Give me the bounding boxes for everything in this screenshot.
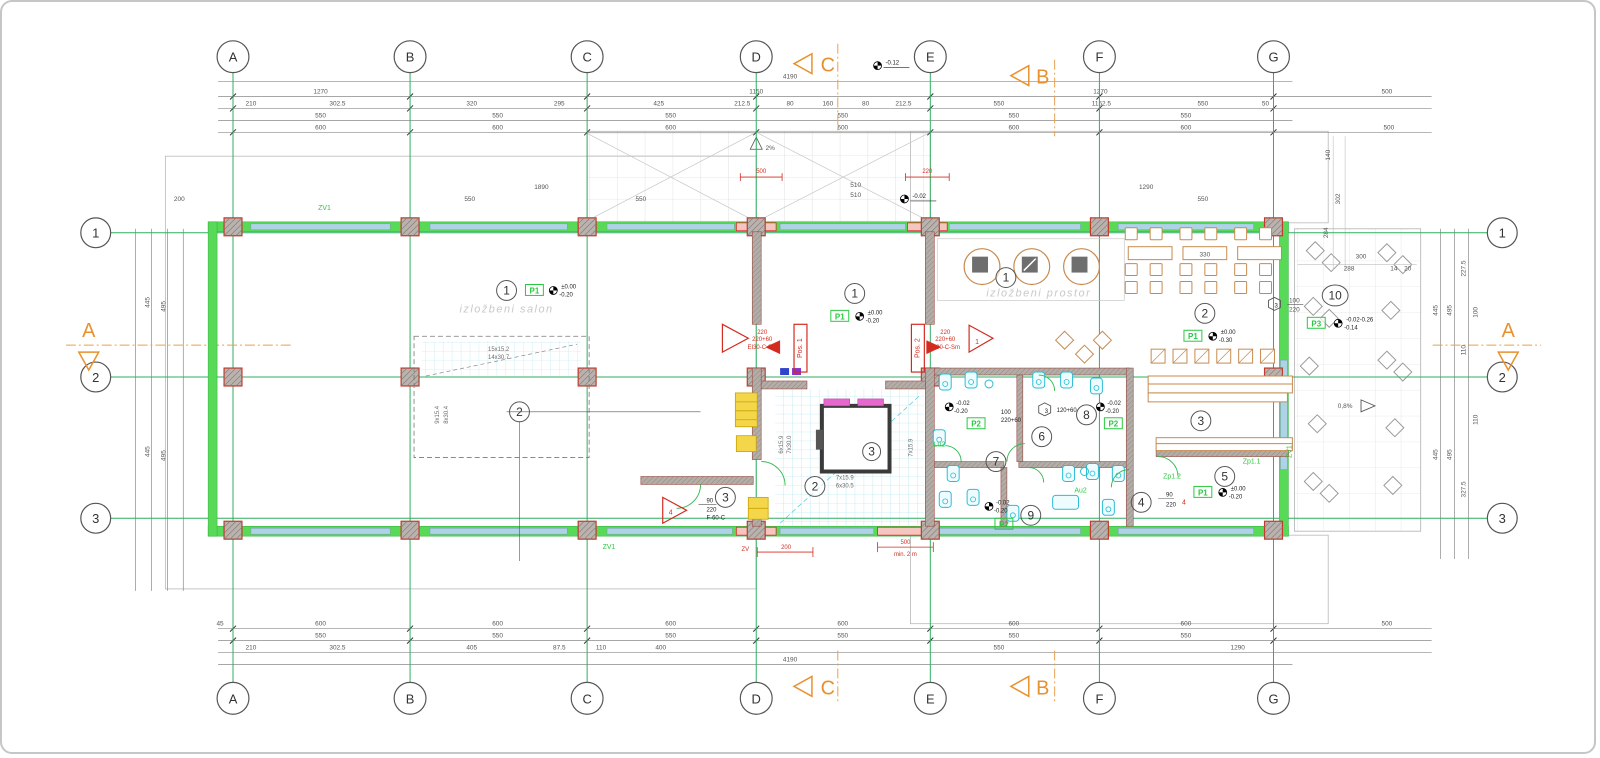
floor-tag: P1	[1188, 332, 1198, 341]
axis-bubble-D: D	[740, 682, 772, 714]
bar-counter	[1148, 376, 1292, 451]
dim: 160	[822, 100, 833, 107]
fire-door-tag: Pos. 2	[914, 338, 921, 358]
elevator-door-panel	[824, 399, 850, 406]
floor-tag: P2	[1108, 420, 1118, 429]
dimension-chain-left: 200 445 495 445 495	[136, 196, 186, 591]
column	[1265, 521, 1283, 539]
stair-count: 7x30.0	[787, 435, 793, 454]
door-type-triangle	[722, 324, 748, 352]
wall-sanitary-v2	[1126, 368, 1133, 526]
wc-fixture	[939, 374, 951, 390]
axis-letter: G	[1268, 50, 1278, 65]
table	[1238, 247, 1282, 260]
section-triangle-icon	[794, 54, 812, 74]
dim: 495	[160, 301, 167, 312]
dim: 550	[1008, 633, 1019, 640]
dim: 600	[315, 621, 326, 628]
slope-label: 0,8%	[1338, 403, 1353, 410]
display-diamond	[1093, 331, 1111, 349]
round-table	[1064, 249, 1100, 285]
main-staircase: 3 7x15.9 6x30.5 6x15.9 7x30.0 7x15.9	[775, 389, 924, 527]
axis-bubble-F: F	[1083, 682, 1115, 714]
floor-plan-canvas: 2% 4190 1270 1150 1270 500 210 302.5 320…	[0, 0, 1596, 754]
section-letter: B	[1036, 677, 1049, 699]
door-type-triangle	[969, 325, 993, 352]
dim: 495	[160, 450, 167, 461]
room-number: 2	[812, 479, 819, 493]
axis-bubble-1: 1	[81, 218, 111, 248]
room-label-hall: 1 P1 ±0.00 -0.20	[831, 284, 883, 325]
dim: 550	[492, 112, 503, 119]
chair	[1260, 282, 1272, 294]
dim: 510	[850, 192, 861, 199]
axis-number: 1	[92, 226, 99, 241]
section-triangle-icon	[1011, 66, 1029, 86]
dim: 220	[1166, 502, 1177, 508]
dim: 1270	[313, 89, 328, 96]
dim: 495	[1447, 305, 1454, 316]
dim: 550	[1181, 112, 1192, 119]
glazing	[780, 528, 874, 534]
dim: 20	[1404, 266, 1412, 273]
stair-count: 14x30.7	[488, 355, 510, 361]
display-diamond	[1076, 345, 1094, 363]
wc-fixture	[1033, 372, 1045, 388]
axis-number: 2	[92, 370, 99, 385]
wc-fixture	[947, 466, 959, 482]
zone-label: Zp1.2	[1163, 473, 1181, 480]
floor-tag: P3	[1311, 319, 1321, 328]
room-label-bar: 3	[1191, 411, 1211, 431]
dim: 220	[757, 330, 768, 336]
axis-letter: G	[1268, 691, 1278, 706]
dining-set-row-1: 330	[1125, 228, 1281, 276]
axis-bubble-B: B	[394, 41, 426, 73]
top-right-canopy-outline	[910, 131, 1328, 223]
door-rating: EI30-C-Sm	[747, 345, 776, 351]
column	[401, 521, 419, 539]
floor-plan-drawing: 2% 4190 1270 1150 1270 500 210 302.5 320…	[2, 2, 1596, 754]
chair	[1125, 264, 1137, 276]
floor-tag: P2	[999, 520, 1009, 529]
sanitary-fixtures	[933, 372, 1124, 521]
elevation-marker-icon	[1219, 488, 1227, 496]
room-number: 1	[1003, 271, 1010, 285]
column	[401, 368, 419, 386]
section-letter: A	[1502, 320, 1516, 342]
room-number: 2	[1202, 306, 1209, 320]
dim: 302	[1335, 193, 1342, 204]
chair	[1205, 228, 1217, 240]
axis-letter: D	[752, 50, 761, 65]
dim: 288	[1344, 266, 1355, 273]
glazing	[251, 224, 390, 230]
dim-red: 220	[922, 169, 933, 175]
axis-bubble-A: A	[217, 682, 249, 714]
dim: 90	[1166, 492, 1173, 498]
dim: 90	[706, 498, 713, 504]
dim: 1890	[534, 184, 549, 191]
dim: 302.5	[329, 100, 346, 107]
wall-room3-left	[641, 476, 753, 484]
axis-number: 3	[1499, 511, 1506, 526]
elevation-marker-icon	[856, 312, 864, 320]
axis-bubbles-top: A B C D E F G	[217, 41, 1289, 73]
room-label-stair2: 2	[805, 476, 825, 496]
elevation-value: -0.20	[1229, 494, 1243, 500]
fire-door-tag: Pos. 1	[797, 338, 804, 358]
column	[1090, 521, 1108, 539]
chair	[1125, 228, 1137, 240]
axis-letter: A	[229, 691, 238, 706]
wall-stair-top-left	[761, 381, 807, 389]
elevation-marker-icon	[1096, 403, 1104, 411]
elevation-marker-icon	[1209, 332, 1217, 340]
dim: 600	[665, 621, 676, 628]
room-label-r5: 5 Zp1.1 P1 ±0.00 -0.20	[1194, 459, 1261, 501]
clearance-note: min. 2 m	[894, 552, 917, 558]
elevation-value: -0.02	[1107, 401, 1121, 407]
dim: 550	[837, 633, 848, 640]
dim: 220+60	[935, 337, 956, 343]
section-letter: A	[82, 320, 96, 342]
chair	[1180, 228, 1192, 240]
room-number: 1	[851, 286, 858, 300]
elevation-value: -0.14	[1344, 325, 1358, 331]
axis-bubble-C: C	[571, 682, 603, 714]
room-number: 10	[1329, 288, 1343, 302]
room-number: 8	[1083, 408, 1090, 422]
room-number: 3	[868, 445, 875, 459]
axis-bubble-G: G	[1258, 41, 1290, 73]
axis-letter: C	[582, 691, 591, 706]
sink-counter	[1053, 495, 1079, 509]
dim: 110	[1472, 414, 1479, 425]
fire-door-pos1: Pos. 1 220 220+60 EI30-C-Sm	[722, 324, 807, 372]
equipment-blue	[780, 368, 789, 375]
dim: 80	[786, 100, 794, 107]
room-name: izložbeni salon	[459, 303, 553, 315]
exhibition-tables	[937, 239, 1124, 363]
elevation-value: -0.12	[886, 61, 900, 67]
dim: 550	[665, 633, 676, 640]
dim: 300	[1356, 254, 1367, 261]
section-marker-c-bottom: C	[794, 676, 835, 699]
elevation-marker-icon	[900, 195, 908, 203]
axis-letter: B	[406, 50, 415, 65]
dim: 600	[1008, 621, 1019, 628]
dim: 600	[1181, 124, 1192, 131]
elevation-value: -0.20	[1105, 409, 1119, 415]
section-marker-c-top: C	[794, 54, 835, 77]
dim: 227.5	[1460, 260, 1467, 277]
room-number: 3	[1198, 414, 1205, 428]
dim: 220	[1289, 306, 1300, 313]
room-number: 4	[1138, 495, 1145, 509]
chair	[1260, 264, 1272, 276]
axis-bubbles-bottom: A B C D E F G	[217, 682, 1289, 714]
dim: 1270	[1093, 89, 1108, 96]
dim-lines	[1441, 229, 1469, 559]
chair	[1205, 264, 1217, 276]
dim: 100	[1472, 307, 1479, 318]
dim: 550	[464, 196, 475, 203]
section-marker-b-bottom: B	[1011, 676, 1049, 699]
yellow-furniture	[735, 393, 768, 519]
dim: 210	[246, 645, 257, 652]
exhibit-pedestal	[1072, 257, 1088, 273]
floor-tag: P1	[835, 312, 845, 321]
zone-label: Zp1.1	[1243, 459, 1261, 466]
door-arc	[677, 484, 701, 508]
axis-letter: D	[752, 691, 761, 706]
wall-e-upper	[925, 232, 934, 325]
dim: 100	[1001, 410, 1012, 416]
door-rating: EI90-C-Sm	[931, 345, 960, 351]
cabinet	[735, 393, 757, 427]
elevation-value: ±0.00	[1231, 486, 1247, 492]
dim: 87.5	[553, 645, 566, 652]
dim: 295	[554, 100, 565, 107]
wall-d-upper	[752, 232, 761, 325]
axis-bubble-C: C	[571, 41, 603, 73]
dim: 550	[994, 100, 1005, 107]
axis-bubble-3: 3	[81, 503, 111, 533]
chair	[1180, 264, 1192, 276]
dim: 600	[665, 124, 676, 131]
dim: 1290	[1139, 184, 1154, 191]
dim: 495	[1447, 449, 1454, 460]
room-number: 5	[1221, 469, 1228, 483]
door-arc	[1029, 468, 1044, 483]
dim: 600	[1008, 124, 1019, 131]
dim: 110	[1460, 345, 1467, 356]
stair-count: 7x15.9	[836, 475, 855, 481]
wall-sanitary-v3	[1001, 468, 1007, 527]
wc-fixture	[1102, 499, 1114, 515]
axis-bubble-2: 2	[81, 362, 111, 392]
stair-count: 6x30.5	[836, 483, 855, 489]
section-triangle-icon	[794, 676, 812, 696]
section-letter: C	[821, 55, 835, 77]
stool	[1217, 349, 1231, 363]
axis-bubble-2: 2	[1487, 362, 1517, 392]
chair	[1235, 264, 1247, 276]
glazing	[780, 224, 905, 230]
axis-bubble-A: A	[217, 41, 249, 73]
section-marker-b-top: B	[1011, 66, 1049, 89]
axis-number: 2	[1499, 370, 1506, 385]
dim: 445	[144, 297, 151, 308]
wall-left	[208, 222, 217, 536]
table	[1128, 247, 1172, 260]
stool	[1195, 349, 1209, 363]
dim-total: 4190	[783, 657, 798, 664]
dim-red: 200	[781, 545, 792, 551]
stool	[1151, 349, 1165, 363]
wall-stair-top-right	[886, 381, 926, 389]
dim: 445	[144, 446, 151, 457]
axis-bubble-F: F	[1083, 41, 1115, 73]
wall-type-label: ZV1	[603, 544, 616, 551]
dim: 220+60	[752, 337, 773, 343]
room-number: 3	[722, 490, 729, 504]
chair	[1150, 264, 1162, 276]
axis-number: 1	[1499, 226, 1506, 241]
dim: 1290	[1230, 645, 1245, 652]
wc-fixture	[1063, 466, 1075, 482]
room-name: izložbeni prostor	[986, 287, 1091, 299]
room-label-lift: 3	[863, 443, 881, 461]
dim-ticks	[230, 94, 1276, 136]
elevation-value: -0.02-0.26	[1346, 317, 1374, 323]
elevation-value: ±0.00	[561, 284, 577, 290]
zone-label: Au2	[1074, 487, 1087, 494]
dim: 445	[1433, 305, 1440, 316]
column	[1090, 218, 1108, 236]
dim: 550	[1181, 633, 1192, 640]
exhibit-pedestal	[972, 257, 988, 273]
elevation-marker-icon	[549, 286, 557, 294]
cabinet	[736, 436, 756, 452]
room-number: 9	[1027, 508, 1034, 522]
axis-letter: E	[926, 50, 935, 65]
elevator-door-panel	[858, 399, 884, 406]
bar-stools	[1151, 349, 1274, 363]
axis-letter: C	[582, 50, 591, 65]
room-label-salon: 1 P1 ±0.00 -0.20 izložbeni salon	[459, 281, 576, 316]
glazing	[607, 224, 734, 230]
bottom-right-pavement-outline	[910, 535, 1328, 624]
glazing	[251, 528, 390, 534]
wc-fixture	[967, 489, 979, 505]
wc-fixture	[1061, 372, 1073, 388]
axis-letter: B	[406, 691, 415, 706]
dim: 550	[1008, 112, 1019, 119]
chair	[1125, 282, 1137, 294]
dim: 445	[1433, 449, 1440, 460]
dim: 600	[492, 124, 503, 131]
dim: 600	[1181, 621, 1192, 628]
elevation-marker-icon	[945, 403, 953, 411]
dim: 500	[1381, 89, 1392, 96]
cafe-seating: 330	[1125, 228, 1292, 451]
column	[401, 218, 419, 236]
axis-bubble-B: B	[394, 682, 426, 714]
elevation-value: ±0.00	[868, 310, 884, 316]
elevation-marker-icon	[985, 502, 993, 510]
dim-red: 500	[900, 540, 911, 546]
elevation-value: -0.20	[559, 292, 573, 298]
leader-lines	[507, 412, 701, 561]
axis-bubble-3: 3	[1487, 503, 1517, 533]
axis-number: 3	[92, 511, 99, 526]
dining-set-row-2	[1125, 282, 1271, 294]
wall-type-label: ZV1	[318, 205, 331, 212]
axis-bubbles-left: 1 2 3	[81, 218, 111, 533]
chair	[1235, 228, 1247, 240]
wall-sanitary-top	[934, 368, 1129, 375]
glazing	[607, 528, 732, 534]
wc-fixture	[939, 491, 951, 507]
shaft-niche	[816, 430, 823, 450]
stool	[1173, 349, 1187, 363]
sink	[985, 380, 993, 388]
axis-letter: F	[1095, 691, 1103, 706]
dim: 550	[665, 112, 676, 119]
dim: 550	[315, 112, 326, 119]
column	[224, 368, 242, 386]
dim: 550	[837, 112, 848, 119]
room-number: 6	[1038, 430, 1045, 444]
dim-red: 500	[756, 169, 767, 175]
elevation-value: ±0.00	[1221, 330, 1237, 336]
dim: 100	[1289, 297, 1300, 304]
floor-tag: P2	[971, 420, 981, 429]
glazing	[430, 528, 567, 534]
column	[224, 218, 242, 236]
dim: 110	[596, 645, 607, 652]
dim: 212.5	[895, 100, 912, 107]
glazing	[1118, 528, 1253, 534]
dim: 600	[492, 621, 503, 628]
door-tag-number: 4	[669, 509, 673, 516]
dim: 200	[174, 196, 185, 203]
door-tag-number: 4	[1182, 499, 1186, 506]
dim: 550	[1197, 100, 1208, 107]
dim: 500	[1383, 124, 1394, 131]
wc-fixture	[965, 372, 977, 388]
dim: 1152.5	[1092, 100, 1112, 107]
dim: 14	[1390, 266, 1398, 273]
section-letter: B	[1036, 67, 1049, 89]
door-tag-number: 1	[975, 339, 979, 346]
axis-letter: A	[229, 50, 238, 65]
section-triangle-icon	[1011, 676, 1029, 696]
stair-count: 6x15.9	[779, 435, 785, 454]
room-number: 7	[993, 455, 1000, 469]
chair	[1205, 282, 1217, 294]
door-arc	[945, 446, 961, 462]
chair	[1150, 228, 1162, 240]
stair-count: 9x15.4	[435, 405, 441, 424]
axis-letter: F	[1095, 50, 1103, 65]
dim: 327.5	[1460, 481, 1467, 498]
dim: 550	[492, 633, 503, 640]
dim: 302.5	[329, 645, 346, 652]
dim: 550	[1197, 196, 1208, 203]
chair	[1150, 282, 1162, 294]
section-letter: C	[821, 677, 835, 699]
table-dim: 330	[1199, 252, 1210, 259]
floor-tag: P1	[1198, 488, 1208, 497]
room-label-cafe: 2 P1 ±0.00 -0.30	[1184, 303, 1236, 344]
dim-lines	[136, 229, 184, 591]
dim: 425	[653, 100, 664, 107]
round-table	[964, 249, 1000, 285]
fire-door-pos2: Pos. 2 220 220+60 EI90-C-Sm 1	[911, 324, 993, 372]
axis-bubble-E: E	[914, 682, 946, 714]
dimension-chain-bottom: 600 600 600 600 600 600 45 500 550 550 5…	[216, 621, 1431, 665]
glazing	[949, 224, 1080, 230]
dim: 50	[1262, 100, 1270, 107]
glazing	[430, 224, 567, 230]
column	[224, 521, 242, 539]
door-rating: F-60-C	[706, 515, 725, 521]
dim: 600	[837, 124, 848, 131]
zone-label: Lu2	[933, 442, 945, 449]
